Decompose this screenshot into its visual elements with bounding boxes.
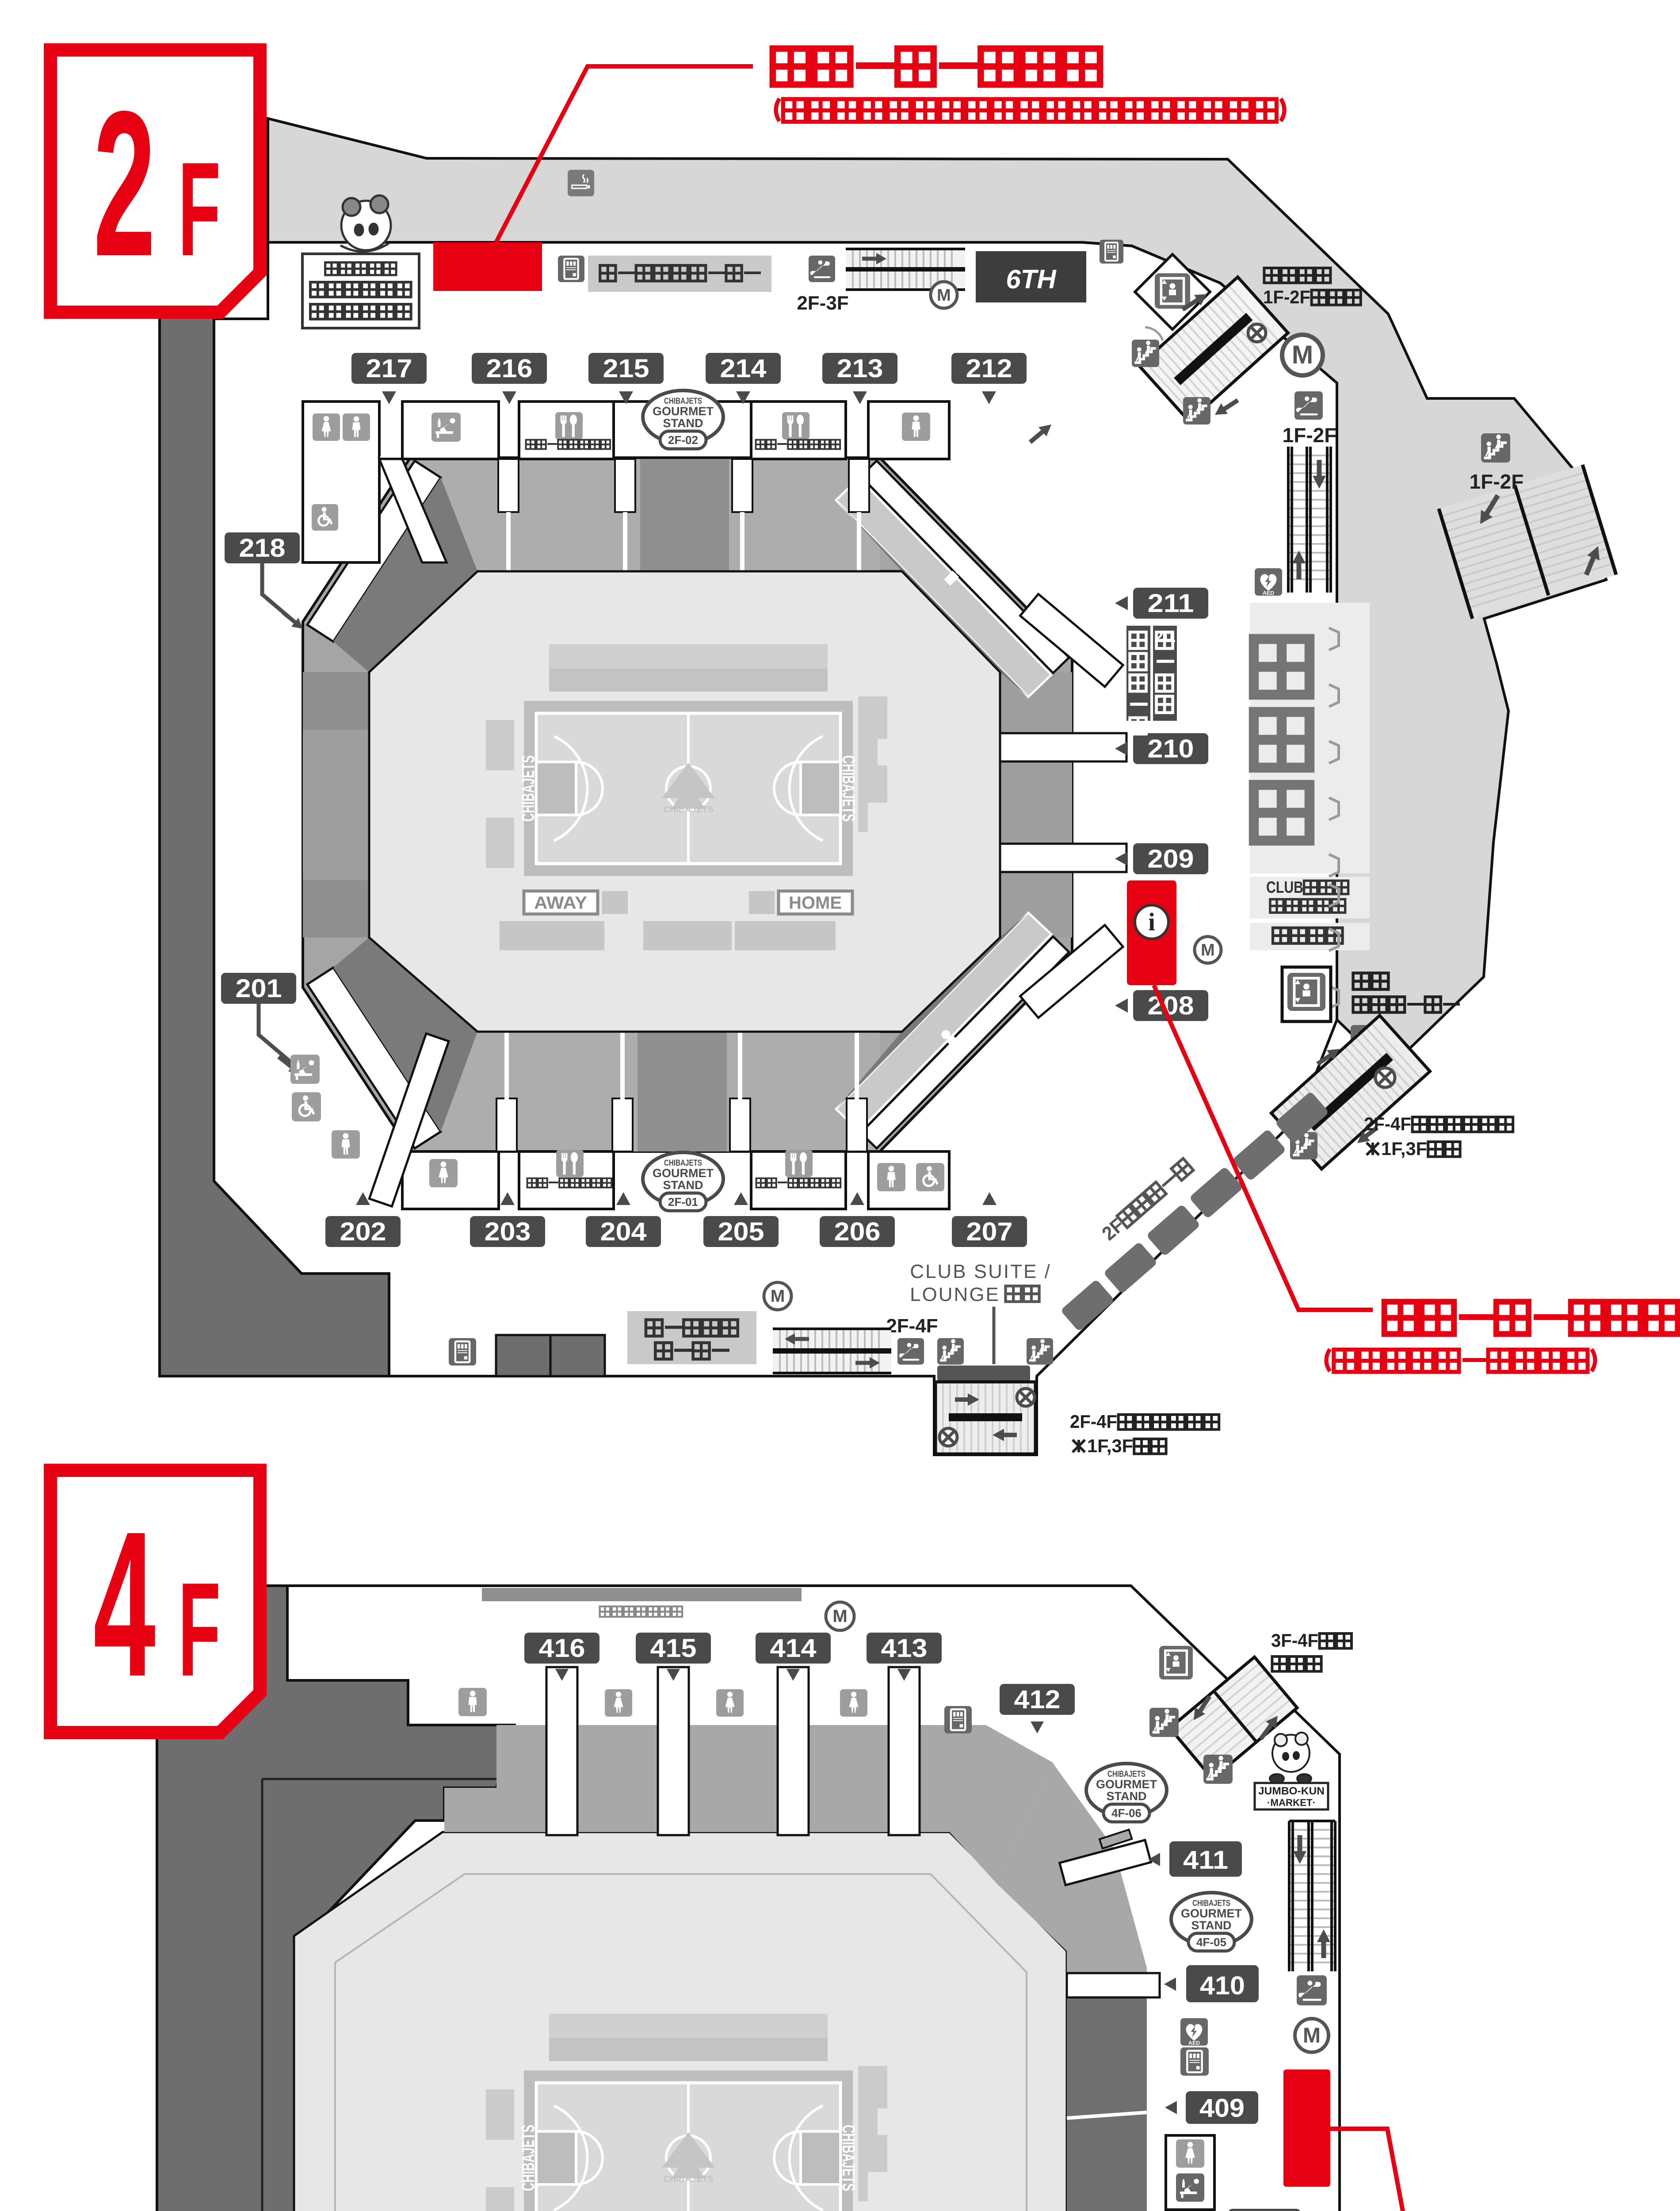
svg-text:2F-4F: 2F-4F: [1070, 1411, 1117, 1432]
svg-text:2F-3F: 2F-3F: [797, 292, 848, 314]
svg-text:2F-02: 2F-02: [668, 433, 698, 447]
svg-text:211: 211: [1154, 627, 1176, 646]
svg-text:CHIBAJETS: CHIBAJETS: [839, 755, 858, 822]
svg-text:M: M: [771, 1287, 785, 1306]
svg-text:202: 202: [340, 1217, 386, 1246]
svg-text:4F-05: 4F-05: [1196, 1936, 1226, 1949]
svg-text:CLUB SUITE /: CLUB SUITE /: [910, 1261, 1051, 1282]
svg-text:AED: AED: [1263, 590, 1274, 596]
svg-text:CHIBAJETS: CHIBAJETS: [663, 805, 713, 815]
svg-text:208: 208: [1148, 991, 1194, 1020]
svg-text:1F-2F: 1F-2F: [1283, 424, 1337, 447]
svg-text:205: 205: [718, 1217, 764, 1246]
svg-text:STAND: STAND: [663, 1178, 703, 1192]
svg-text:STAND: STAND: [1191, 1919, 1232, 1932]
svg-text:215: 215: [603, 354, 649, 383]
svg-text:GOURMET: GOURMET: [1096, 1778, 1157, 1791]
svg-text:M: M: [937, 286, 951, 305]
svg-text:211: 211: [1148, 589, 1194, 618]
svg-text:204: 204: [600, 1217, 647, 1246]
svg-text:CHIBAJETS: CHIBAJETS: [519, 755, 538, 822]
svg-text:1F,3F: 1F,3F: [1381, 1138, 1427, 1159]
svg-text:213: 213: [837, 354, 883, 383]
svg-text:416: 416: [539, 1634, 585, 1663]
svg-text:415: 415: [650, 1634, 697, 1663]
svg-text:AWAY: AWAY: [534, 893, 587, 913]
svg-text:212: 212: [966, 354, 1012, 383]
svg-text:210: 210: [1148, 734, 1194, 763]
svg-text:M: M: [832, 1607, 847, 1626]
svg-text:2F-4F: 2F-4F: [1364, 1113, 1411, 1134]
svg-text:M: M: [1201, 941, 1215, 960]
svg-text:207: 207: [966, 1217, 1013, 1246]
svg-text:3F-4F: 3F-4F: [1271, 1630, 1318, 1651]
svg-text:214: 214: [720, 354, 767, 383]
svg-text:STAND: STAND: [1107, 1790, 1147, 1803]
svg-text:STAND: STAND: [663, 417, 703, 430]
svg-text:GOURMET: GOURMET: [653, 405, 714, 418]
svg-text:4: 4: [93, 1488, 157, 1720]
svg-text:GOURMET: GOURMET: [1181, 1907, 1242, 1920]
svg-text:1F,3F: 1F,3F: [1087, 1435, 1133, 1456]
svg-text:218: 218: [239, 534, 286, 562]
svg-text:AED: AED: [1188, 2040, 1200, 2046]
svg-text:LOUNGE: LOUNGE: [910, 1284, 1000, 1305]
svg-text:CHIBAJETS: CHIBAJETS: [519, 2125, 538, 2191]
svg-text:217: 217: [366, 354, 412, 383]
svg-text:410: 410: [1200, 1971, 1245, 2000]
svg-text:6TH: 6TH: [1006, 264, 1057, 294]
svg-text:F: F: [178, 1555, 221, 1704]
svg-text:F: F: [178, 134, 221, 283]
svg-text:206: 206: [834, 1217, 881, 1246]
svg-text:JUMBO-KUN: JUMBO-KUN: [1258, 1785, 1325, 1797]
svg-text:HOME: HOME: [789, 893, 842, 913]
svg-text:i: i: [1148, 908, 1155, 936]
svg-text:CHIBAJETS: CHIBAJETS: [663, 2174, 713, 2184]
svg-text:409: 409: [1199, 2094, 1245, 2123]
svg-text:·MARKET·: ·MARKET·: [1267, 1797, 1316, 1808]
svg-text:414: 414: [770, 1634, 817, 1663]
svg-text:2: 2: [93, 68, 156, 299]
svg-text:CHIBAJETS: CHIBAJETS: [839, 2125, 858, 2191]
svg-text:GOURMET: GOURMET: [653, 1167, 714, 1180]
svg-text:CLUB: CLUB: [1266, 878, 1303, 896]
svg-text:M: M: [1292, 340, 1313, 369]
svg-text:412: 412: [1014, 1685, 1061, 1714]
svg-text:2F-4F: 2F-4F: [886, 1315, 938, 1337]
svg-text:201: 201: [236, 974, 282, 1003]
svg-text:1F-2F: 1F-2F: [1470, 470, 1524, 493]
svg-text:1F-2F: 1F-2F: [1263, 287, 1310, 307]
svg-text:2F-01: 2F-01: [668, 1195, 698, 1209]
svg-text:216: 216: [486, 354, 533, 383]
svg-text:413: 413: [881, 1634, 928, 1663]
svg-text:411: 411: [1183, 1846, 1228, 1874]
svg-text:209: 209: [1148, 845, 1194, 873]
svg-text:203: 203: [485, 1217, 531, 1246]
svg-text:4F-06: 4F-06: [1111, 1806, 1142, 1820]
svg-text:M: M: [1303, 2024, 1321, 2047]
